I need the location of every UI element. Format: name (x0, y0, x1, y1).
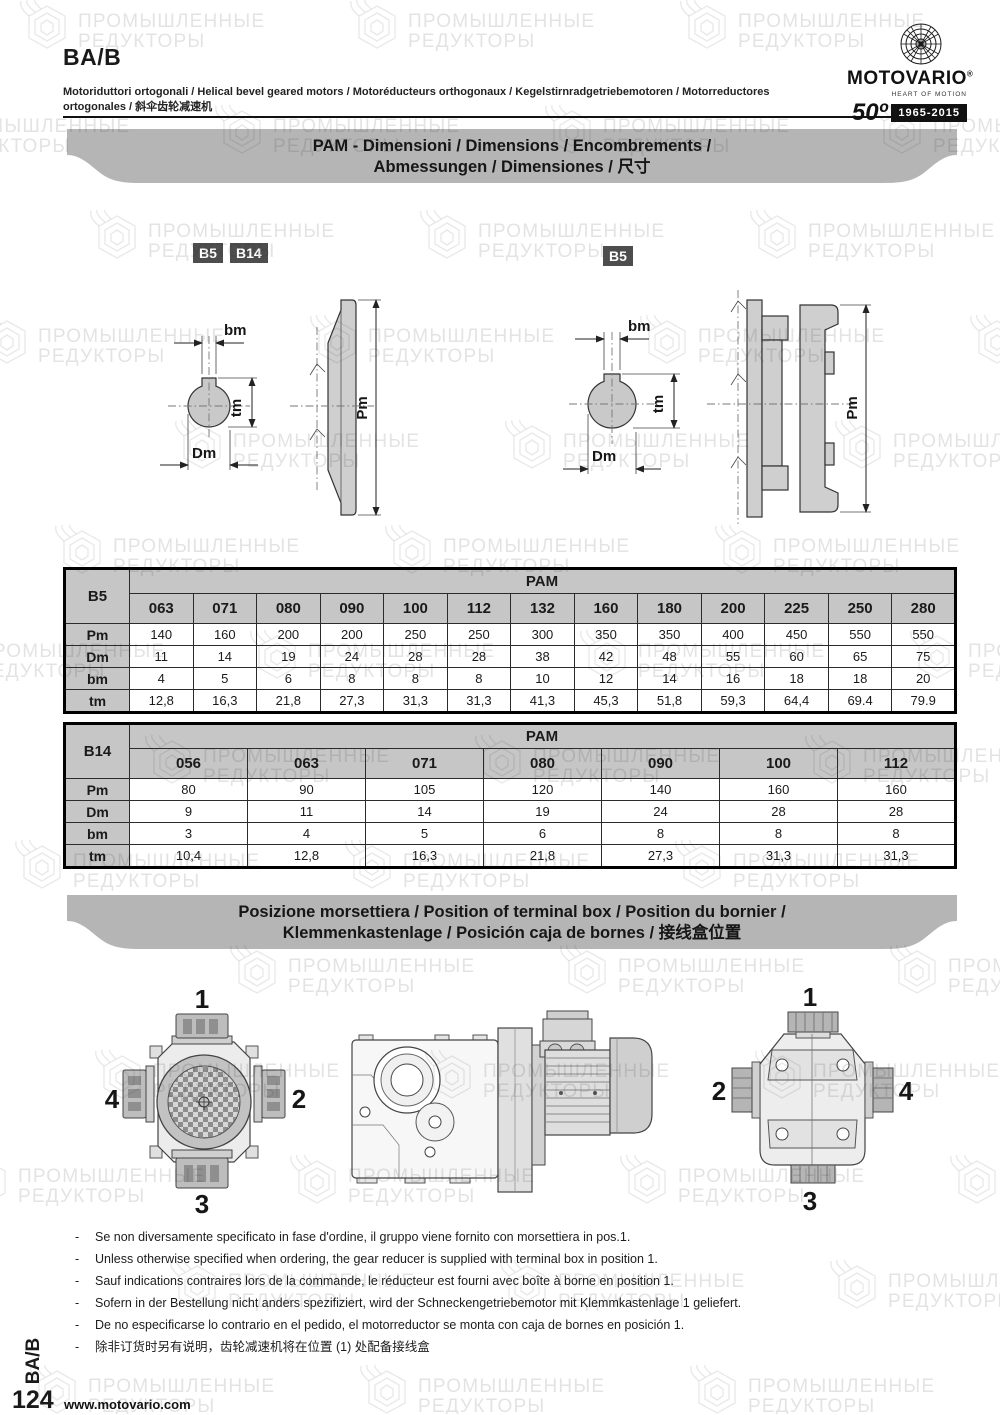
table-row-label: bm (65, 668, 130, 690)
table-cell: 59,3 (701, 690, 765, 713)
terminal-position-rear-view: 1 2 3 4 (692, 982, 932, 1222)
dim-label-bm: bm (224, 322, 247, 339)
dim-label-tm: tm (228, 399, 245, 417)
table-cell: 8 (384, 668, 448, 690)
coupling-profile (800, 305, 838, 512)
fan-cover (610, 1038, 652, 1133)
table-cell: 27,3 (602, 845, 720, 868)
table-cell: 6 (257, 668, 321, 690)
table-row: Dm11141924282838424855606575 (65, 646, 956, 668)
table-cell: 27,3 (320, 690, 384, 713)
registered-mark: ® (967, 70, 973, 79)
table-row-label: tm (65, 690, 130, 713)
dim-label-pm: Pm (354, 396, 371, 419)
table-cell: 21,8 (257, 690, 321, 713)
table-cell: 160 (193, 624, 257, 646)
table-cell: 250 (384, 624, 448, 646)
footnote-dash: - (75, 1274, 81, 1288)
table-cell: 31,3 (447, 690, 511, 713)
table-cell: 10 (511, 668, 575, 690)
table-cell: 24 (320, 646, 384, 668)
table-column-header: 112 (447, 594, 511, 624)
table-corner-label: B14 (65, 724, 130, 779)
geared-motor-side-view (345, 1005, 660, 1200)
table-row: bm45688810121416181820 (65, 668, 956, 690)
table-cell: 140 (130, 624, 194, 646)
table-column-header: 080 (257, 594, 321, 624)
table-cell: 28 (720, 801, 838, 823)
table-column-header: 071 (366, 749, 484, 779)
table-row: Pm8090105120140160160 (65, 779, 956, 801)
table-cell: 10,4 (130, 845, 248, 868)
table-cell: 250 (447, 624, 511, 646)
position-number-3: 3 (195, 1189, 209, 1219)
header-divider (63, 116, 957, 118)
table-column-header: 180 (638, 594, 702, 624)
table-column-header: 056 (130, 749, 248, 779)
table-column-header: 200 (701, 594, 765, 624)
footnote: -Se non diversamente specificato in fase… (75, 1230, 741, 1244)
table-row: tm12,816,321,827,331,331,341,345,351,859… (65, 690, 956, 713)
table-cell: 550 (892, 624, 956, 646)
table-column-header: 132 (511, 594, 575, 624)
dimension-table: B5PAM06307108009010011213216018020022525… (63, 567, 957, 714)
footnote: -除非订货时另有说明，齿轮减速机将在位置 (1) 处配备接线盒 (75, 1340, 741, 1354)
table-cell: 19 (257, 646, 321, 668)
table-cell: 28 (447, 646, 511, 668)
terminal-box-bottom (791, 1165, 835, 1183)
table-cell: 19 (484, 801, 602, 823)
table-column-header: 080 (484, 749, 602, 779)
table-column-header: 112 (838, 749, 956, 779)
page-title: BA/B (63, 44, 121, 71)
anniversary-years: 1965-2015 (891, 104, 967, 122)
table-cell: 51,8 (638, 690, 702, 713)
website-link[interactable]: www.motovario.com (64, 1397, 191, 1412)
table-cell: 14 (193, 646, 257, 668)
pam-table-b14: B14PAM056063071080090100112Pm80901051201… (63, 722, 957, 869)
footnote-dash: - (75, 1340, 81, 1354)
position-number-4: 4 (105, 1084, 120, 1114)
table-cell: 31,3 (720, 845, 838, 868)
terminal-position-front-view: 1 2 3 4 (88, 982, 323, 1222)
sidebar-series-label: BA/B (8, 1332, 60, 1390)
pam-table-b5: B5PAM06307108009010011213216018020022525… (63, 567, 957, 714)
footnote-dash: - (75, 1252, 81, 1266)
table-cell: 75 (892, 646, 956, 668)
table-cell: 300 (511, 624, 575, 646)
table-corner-label: B5 (65, 569, 130, 624)
position-number-1: 1 (803, 982, 817, 1012)
position-number-1: 1 (195, 984, 209, 1014)
table-cell: 12,8 (130, 690, 194, 713)
dim-label-dm: Dm (592, 448, 616, 465)
brand-name: MOTOVARIO® (847, 68, 967, 90)
motor-flange-plate (747, 300, 762, 517)
table-cell: 120 (484, 779, 602, 801)
table-row-label: tm (65, 845, 130, 868)
table-cell: 200 (257, 624, 321, 646)
table-cell: 38 (511, 646, 575, 668)
position-number-2: 2 (712, 1076, 726, 1106)
table-column-header: 160 (574, 594, 638, 624)
flange-drawing-b5: bm tm Dm Pm (555, 232, 885, 527)
banner-text: PAM - Dimensioni / Dimensions / Encombre… (67, 129, 957, 179)
footnotes-list: -Se non diversamente specificato in fase… (75, 1230, 741, 1362)
flange-drawing-b5-b14: bm tm Dm Pm (140, 232, 440, 527)
pam-dimensions-banner: PAM - Dimensioni / Dimensions / Encombre… (67, 129, 957, 186)
footnote: -Unless otherwise specified when orderin… (75, 1252, 741, 1266)
table-cell: 90 (248, 779, 366, 801)
table-group-header: PAM (130, 569, 956, 594)
table-cell: 4 (248, 823, 366, 845)
footnote-dash: - (75, 1318, 81, 1332)
brand-tagline: HEART OF MOTION (847, 91, 967, 98)
table-cell: 200 (320, 624, 384, 646)
table-column-header: 225 (765, 594, 829, 624)
table-cell: 5 (366, 823, 484, 845)
table-cell: 160 (838, 779, 956, 801)
table-row-label: bm (65, 823, 130, 845)
table-column-header: 280 (892, 594, 956, 624)
flange-profile (328, 300, 356, 515)
dim-label-pm: Pm (844, 396, 861, 419)
table-cell: 65 (828, 646, 892, 668)
table-column-header: 063 (248, 749, 366, 779)
footnote: -Sauf indications contraires lors de la … (75, 1274, 741, 1288)
table-cell: 160 (720, 779, 838, 801)
page-subtitle: Motoriduttori ortogonali / Helical bevel… (63, 86, 823, 114)
banner-text: Posizione morsettiera / Position of term… (67, 895, 957, 945)
table-column-header: 063 (130, 594, 194, 624)
table-cell: 9 (130, 801, 248, 823)
table-cell: 8 (320, 668, 384, 690)
table-column-header: 250 (828, 594, 892, 624)
table-column-header: 090 (320, 594, 384, 624)
table-cell: 5 (193, 668, 257, 690)
dim-label-tm: tm (650, 395, 667, 413)
table-cell: 18 (765, 668, 829, 690)
table-cell: 16,3 (366, 845, 484, 868)
position-number-2: 2 (292, 1084, 306, 1114)
terminal-box-banner: Posizione morsettiera / Position of term… (67, 895, 957, 952)
position-number-4: 4 (899, 1076, 914, 1106)
table-cell: 16 (701, 668, 765, 690)
table-cell: 8 (720, 823, 838, 845)
table-cell: 450 (765, 624, 829, 646)
footnote: -Sofern in der Bestellung nicht anders s… (75, 1296, 741, 1310)
footnote-dash: - (75, 1230, 81, 1244)
table-column-header: 090 (602, 749, 720, 779)
footnote: -De no especificarse lo contrario en el … (75, 1318, 741, 1332)
table-cell: 55 (701, 646, 765, 668)
table-cell: 11 (248, 801, 366, 823)
table-cell: 14 (366, 801, 484, 823)
table-row-label: Pm (65, 779, 130, 801)
dimension-table: B14PAM056063071080090100112Pm80901051201… (63, 722, 957, 869)
table-row: bm3456888 (65, 823, 956, 845)
table-cell: 41,3 (511, 690, 575, 713)
anniversary-number: 50º (852, 103, 887, 123)
anniversary-logo: 50º 1965-2015 (847, 103, 967, 123)
table-column-header: 071 (193, 594, 257, 624)
table-row: Dm9111419242828 (65, 801, 956, 823)
table-cell: 69.4 (828, 690, 892, 713)
table-cell: 64,4 (765, 690, 829, 713)
table-group-header: PAM (130, 724, 956, 749)
terminal-box-left (732, 1068, 752, 1112)
table-cell: 31,3 (384, 690, 448, 713)
table-row: tm10,412,816,321,827,331,331,3 (65, 845, 956, 868)
footnote-dash: - (75, 1296, 81, 1310)
brand-block: MOTOVARIO® HEART OF MOTION 50º 1965-2015 (847, 22, 967, 123)
table-cell: 8 (602, 823, 720, 845)
table-cell: 28 (838, 801, 956, 823)
table-cell: 79.9 (892, 690, 956, 713)
table-column-header: 100 (384, 594, 448, 624)
table-cell: 3 (130, 823, 248, 845)
table-cell: 24 (602, 801, 720, 823)
table-cell: 4 (130, 668, 194, 690)
table-cell: 80 (130, 779, 248, 801)
motovario-mandala-icon (899, 22, 943, 66)
dim-label-bm: bm (628, 318, 651, 335)
table-cell: 12,8 (248, 845, 366, 868)
terminal-box (543, 1019, 592, 1041)
table-cell: 45,3 (574, 690, 638, 713)
table-cell: 550 (828, 624, 892, 646)
catalog-page: BA/B Motoriduttori ortogonali / Helical … (0, 0, 1000, 1414)
table-cell: 18 (828, 668, 892, 690)
table-cell: 20 (892, 668, 956, 690)
table-cell: 42 (574, 646, 638, 668)
table-row-label: Dm (65, 801, 130, 823)
table-cell: 28 (384, 646, 448, 668)
table-cell: 11 (130, 646, 194, 668)
table-cell: 6 (484, 823, 602, 845)
terminal-box-right (873, 1068, 893, 1112)
dim-label-dm: Dm (192, 445, 216, 462)
table-row-label: Dm (65, 646, 130, 668)
table-cell: 105 (366, 779, 484, 801)
page-number: 124 (12, 1386, 54, 1415)
table-cell: 8 (838, 823, 956, 845)
table-cell: 140 (602, 779, 720, 801)
table-cell: 60 (765, 646, 829, 668)
table-cell: 400 (701, 624, 765, 646)
table-row: Pm14016020020025025030035035040045055055… (65, 624, 956, 646)
table-row-label: Pm (65, 624, 130, 646)
table-cell: 12 (574, 668, 638, 690)
table-column-header: 100 (720, 749, 838, 779)
table-cell: 16,3 (193, 690, 257, 713)
table-cell: 350 (574, 624, 638, 646)
table-cell: 8 (447, 668, 511, 690)
table-cell: 48 (638, 646, 702, 668)
table-cell: 350 (638, 624, 702, 646)
position-number-3: 3 (803, 1186, 817, 1216)
table-cell: 14 (638, 668, 702, 690)
table-cell: 31,3 (838, 845, 956, 868)
table-cell: 21,8 (484, 845, 602, 868)
